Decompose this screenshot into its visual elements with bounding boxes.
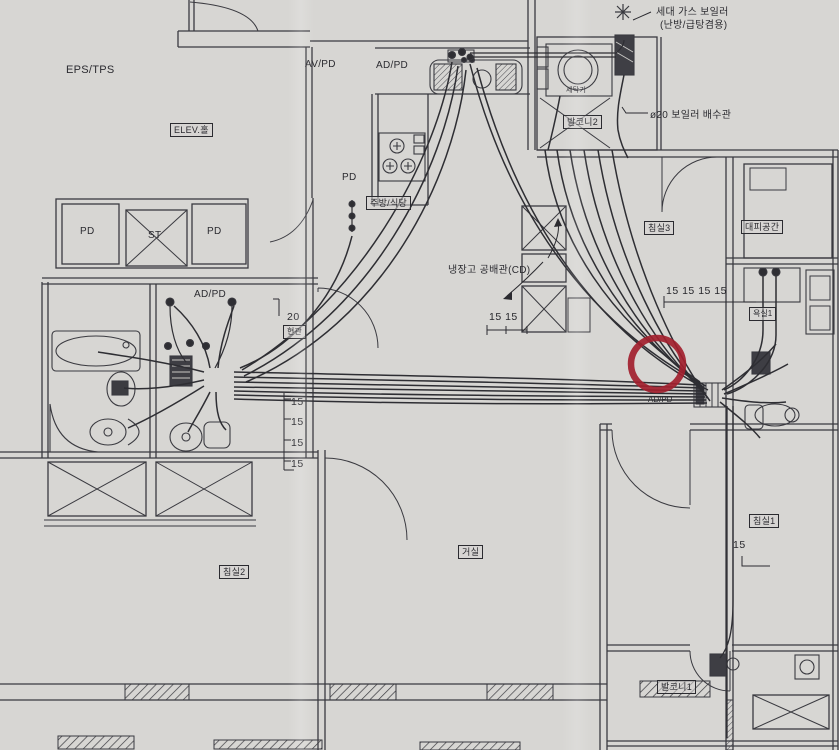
label-ad-pd-kitchen: AD/PD: [376, 60, 408, 71]
dim-riser-15-1: 15: [291, 396, 304, 408]
label-ad-pd-bath-right: AD/PD: [648, 395, 672, 404]
label-av-pd: AV/PD: [305, 59, 336, 70]
dim-20: 20: [287, 311, 300, 323]
label-bedroom3: 침실3: [644, 221, 674, 235]
label-kitchen-dining: 주방/식당: [366, 196, 411, 210]
label-boiler-subtitle: (난방/급탕겸용): [660, 16, 727, 31]
label-bedroom2: 침실2: [219, 565, 249, 579]
dim-15-right: 15: [733, 539, 746, 551]
label-eps-tps: EPS/TPS: [66, 64, 115, 76]
dim-riser-15-4: 15: [291, 458, 304, 470]
label-balcony1: 발코니1: [657, 680, 696, 694]
label-ad-pd-bath-left: AD/PD: [194, 289, 226, 300]
label-evac-space: 대피공간: [741, 220, 783, 234]
label-pd-right: PD: [207, 226, 222, 237]
label-entrance: 현관: [283, 325, 306, 339]
dim-15-15: 15 15: [489, 311, 518, 323]
label-washer: 세탁기: [566, 85, 586, 95]
hatched-walls: [58, 681, 733, 750]
label-bath1: 욕실1: [749, 307, 776, 321]
label-balcony2: 발코니2: [563, 115, 602, 129]
label-elev-hall: ELEV.홀: [170, 123, 213, 137]
dim-riser-15-3: 15: [291, 437, 304, 449]
label-bedroom1: 침실1: [749, 514, 779, 528]
pipe-lines: [98, 40, 788, 738]
label-pd-left: PD: [80, 226, 95, 237]
label-boiler-drain: ø20 보일러 배수관: [650, 106, 731, 121]
floorplan-scan: EPS/TPS ELEV.홀 AV/PD AD/PD PD ST PD PD 주…: [0, 0, 839, 750]
dim-riser-15-2: 15: [291, 416, 304, 428]
label-pd-kitchen: PD: [342, 172, 357, 183]
label-living: 거실: [458, 545, 483, 559]
label-st: ST: [148, 230, 161, 241]
label-fridge-conduit: 냉장고 공배관(CD): [448, 261, 530, 276]
dim-15-row: 15 15 15 15: [666, 285, 727, 297]
